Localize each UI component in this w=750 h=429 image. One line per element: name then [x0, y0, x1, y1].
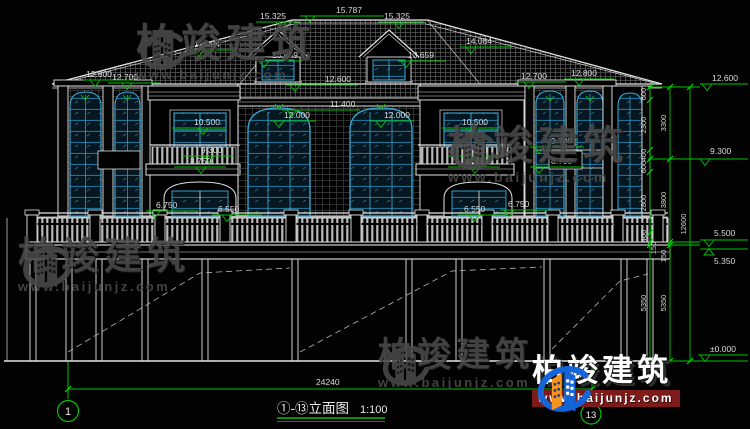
level-label: ±0.000 [710, 344, 736, 354]
cad-elevation-screenshot: 15.787 15.325 15.325 14.084 14.084 13.65… [0, 0, 750, 429]
chain-dim: 5350 [639, 295, 648, 312]
level-label: 9.700 [551, 136, 573, 146]
drawing-title: ①-⑬立面图 [277, 401, 349, 416]
title-block: ①-⑬立面图 1:100 [277, 401, 388, 416]
level-label: 15.325 [260, 11, 286, 21]
level-label: 13.659 [272, 50, 298, 60]
level-label: 15.787 [336, 5, 362, 15]
chain-dim-total: 12600 [679, 214, 688, 235]
level-label: 12.000 [284, 110, 310, 120]
level-label: 13.659 [408, 50, 434, 60]
title-underline [277, 418, 385, 422]
level-label: 12.700 [112, 72, 138, 82]
chain-dim: 400 [639, 230, 648, 243]
left-wing [146, 86, 240, 216]
level-label: 12.800 [571, 68, 597, 78]
baijun-brand-logo: 柏竣建筑 www.baijunjz.com [532, 355, 680, 407]
level-label: 12.600 [325, 74, 351, 84]
level-label: 6.750 [156, 200, 178, 210]
level-label: 15.325 [384, 11, 410, 21]
chain-dim: 5350 [659, 295, 668, 312]
chain-dim: 2300 [639, 117, 648, 134]
level-label: 6.550 [218, 204, 240, 214]
center-block [238, 106, 420, 216]
chain-dim: 2800 [639, 195, 648, 212]
level-label: 9.300 [201, 145, 223, 155]
bottom-dim-label: 24240 [316, 377, 340, 387]
drawing-scale: 1:100 [360, 404, 388, 416]
level-label: 11.400 [330, 99, 356, 109]
left-bay [54, 80, 152, 216]
grid-bubble-label: 1 [65, 406, 71, 418]
baijun-logo-icon [532, 355, 594, 421]
level-label: 6.750 [508, 199, 530, 209]
level-label: 9.300 [710, 146, 732, 156]
level-label: 6.550 [464, 204, 486, 214]
deck-railing [25, 210, 670, 259]
chain-dim: 150 [649, 242, 658, 255]
grid-bubble-1: 1 [58, 401, 79, 422]
chain-dim: 150 [659, 250, 668, 263]
level-label: 12.600 [712, 73, 738, 83]
chain-dim: 600 [639, 88, 648, 101]
level-label: 12.700 [521, 71, 547, 81]
chain-dim: 3300 [659, 115, 668, 132]
level-label: 12.000 [384, 110, 410, 120]
level-label: 8.750 [190, 156, 212, 166]
level-label: 10.500 [194, 117, 220, 127]
chain-dim: 400 [639, 149, 648, 162]
right-bay [518, 80, 616, 216]
chain-dim: 3800 [659, 192, 668, 209]
level-label: 5.500 [714, 228, 736, 238]
chain-labels: 600 2300 400 600 2800 400 150 5350 3300 … [639, 88, 688, 312]
level-label: 8.750 [466, 156, 488, 166]
level-label: 14.084 [466, 36, 492, 46]
chain-dim: 600 [639, 161, 648, 174]
level-label: 14.084 [194, 39, 220, 49]
level-label: 10.500 [462, 117, 488, 127]
level-label: 5.350 [714, 256, 736, 266]
level-label: 8.700 [551, 156, 573, 166]
level-label: 9.300 [466, 145, 488, 155]
level-label: 12.800 [86, 69, 112, 79]
